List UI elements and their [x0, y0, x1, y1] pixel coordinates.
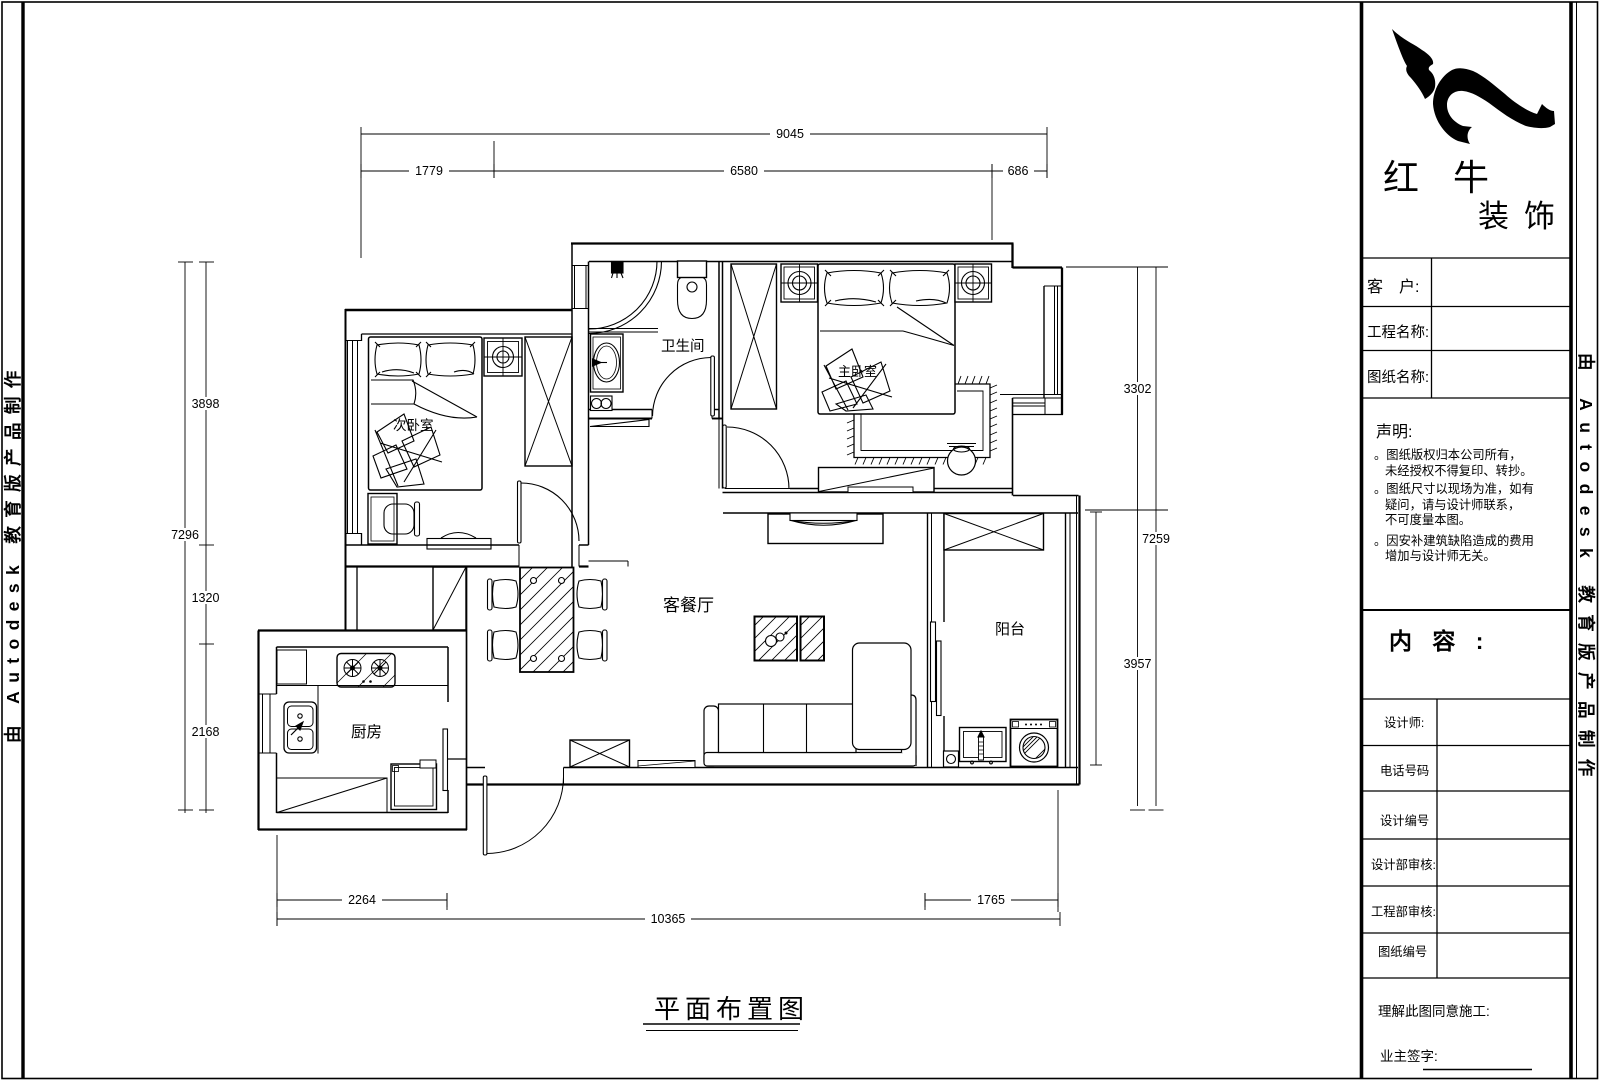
- svg-text:次卧室: 次卧室: [393, 417, 434, 433]
- svg-text:。图纸版权归本公司所有，: 。图纸版权归本公司所有，: [1374, 448, 1522, 462]
- svg-text:平面布置图: 平面布置图: [654, 994, 809, 1024]
- svg-text:。图纸尺寸以现场为准，如有: 。图纸尺寸以现场为准，如有: [1374, 481, 1534, 496]
- svg-text:2264: 2264: [348, 893, 376, 907]
- svg-text:1765: 1765: [977, 893, 1005, 907]
- svg-text:由 Autodesk 教育版产品制作: 由 Autodesk 教育版产品制作: [3, 362, 23, 743]
- svg-text:业主签字:: 业主签字:: [1380, 1048, 1438, 1064]
- svg-text:不可度量本图。: 不可度量本图。: [1385, 512, 1471, 527]
- svg-text:设计师:: 设计师:: [1384, 716, 1424, 730]
- svg-text:电话号码: 电话号码: [1380, 764, 1429, 778]
- svg-text:3957: 3957: [1124, 657, 1152, 671]
- svg-text:卫生间: 卫生间: [661, 338, 705, 355]
- svg-text:图纸名称:: 图纸名称:: [1367, 369, 1429, 386]
- svg-text:图纸编号: 图纸编号: [1378, 944, 1427, 959]
- svg-text:声明:: 声明:: [1376, 423, 1412, 441]
- svg-text:理解此图同意施工:: 理解此图同意施工:: [1378, 1003, 1490, 1019]
- svg-text:客 户:: 客 户:: [1367, 278, 1419, 296]
- svg-text:红牛: 红牛: [1383, 157, 1523, 198]
- svg-text:疑问，请与设计师联系，: 疑问，请与设计师联系，: [1385, 497, 1520, 512]
- svg-text:686: 686: [1008, 164, 1029, 178]
- svg-text:未经授权不得复印、转抄。: 未经授权不得复印、转抄。: [1385, 463, 1533, 478]
- svg-text:主卧室: 主卧室: [838, 364, 877, 379]
- svg-text:增加与设计师无关。: 增加与设计师无关。: [1385, 548, 1496, 563]
- svg-text:6580: 6580: [730, 164, 758, 178]
- svg-text:7259: 7259: [1142, 532, 1170, 546]
- svg-text:1320: 1320: [192, 591, 220, 605]
- svg-text:由 Autodesk 教育版产品制作: 由 Autodesk 教育版产品制作: [1576, 353, 1596, 788]
- svg-text:2168: 2168: [192, 725, 220, 739]
- svg-text:阳台: 阳台: [995, 621, 1025, 638]
- svg-text:10365: 10365: [651, 912, 686, 926]
- svg-text:9045: 9045: [776, 127, 804, 141]
- svg-text:3302: 3302: [1124, 382, 1152, 396]
- svg-text:。因安补建筑缺陷造成的费用: 。因安补建筑缺陷造成的费用: [1374, 533, 1534, 548]
- svg-text:设计部审核:: 设计部审核:: [1371, 857, 1436, 872]
- svg-text:厨房: 厨房: [351, 723, 382, 741]
- svg-text:1779: 1779: [415, 164, 443, 178]
- svg-text:工程部审核:: 工程部审核:: [1371, 904, 1436, 919]
- svg-text:装饰: 装饰: [1478, 199, 1570, 234]
- svg-text:客餐厅: 客餐厅: [663, 596, 714, 615]
- svg-text:7296: 7296: [171, 528, 199, 542]
- svg-text:内 容 :: 内 容 :: [1389, 628, 1490, 654]
- svg-text:设计编号: 设计编号: [1380, 813, 1429, 828]
- svg-text:3898: 3898: [192, 397, 220, 411]
- svg-text:工程名称:: 工程名称:: [1367, 324, 1429, 341]
